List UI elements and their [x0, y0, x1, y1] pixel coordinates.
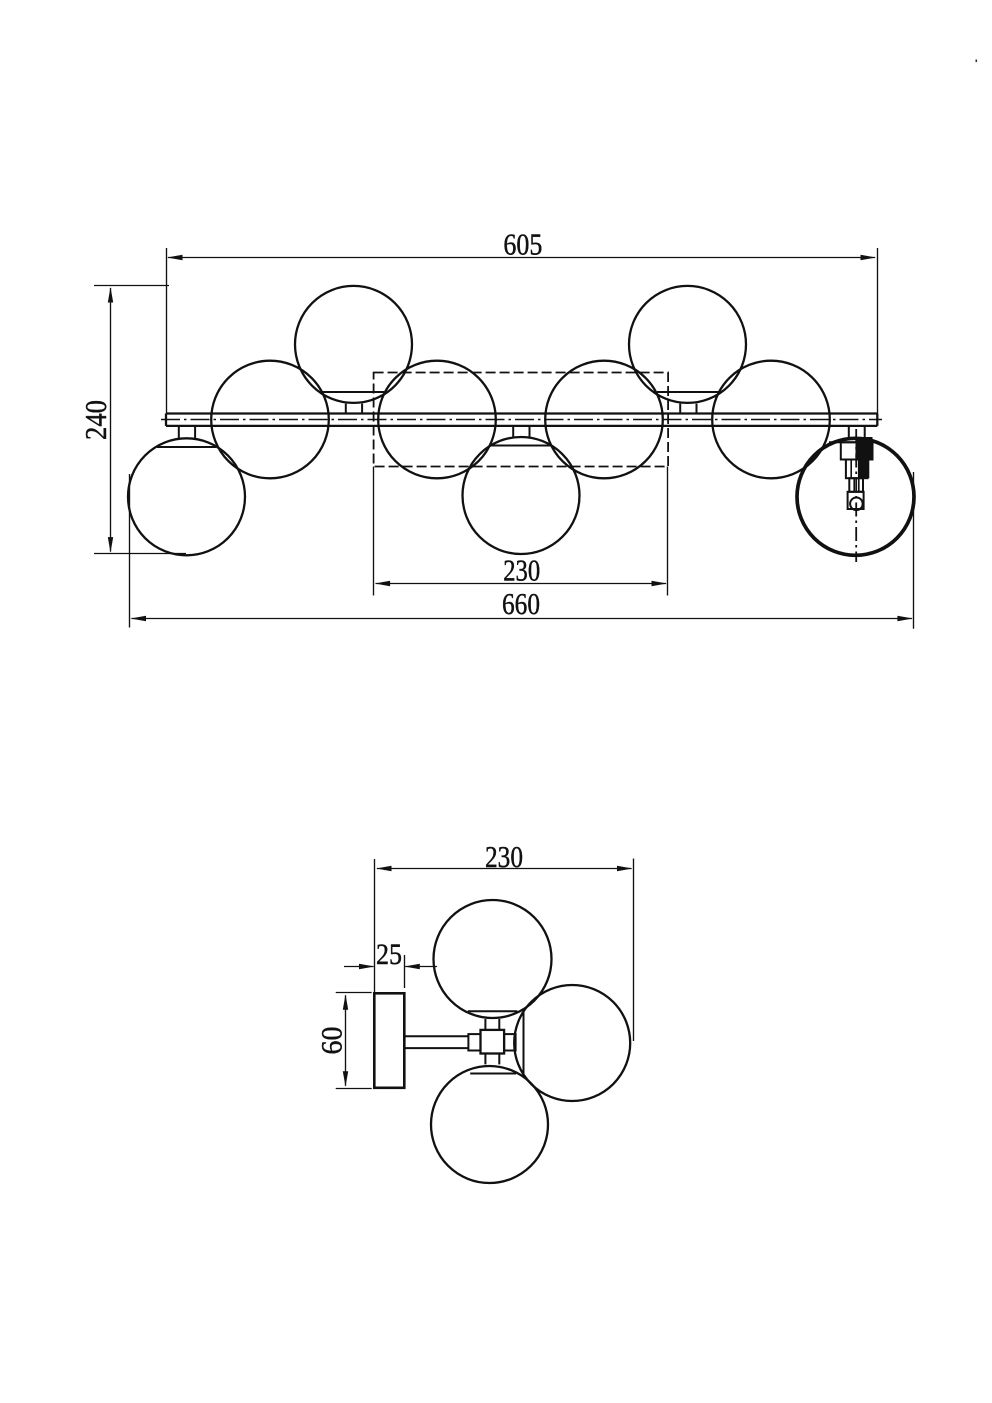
svg-text:25: 25: [376, 938, 402, 971]
svg-text:605: 605: [503, 227, 542, 262]
svg-text:240: 240: [78, 400, 113, 440]
svg-text:660: 660: [502, 586, 540, 621]
svg-text:60: 60: [317, 1027, 349, 1055]
svg-text:230: 230: [485, 840, 523, 874]
svg-text:230: 230: [503, 553, 540, 588]
